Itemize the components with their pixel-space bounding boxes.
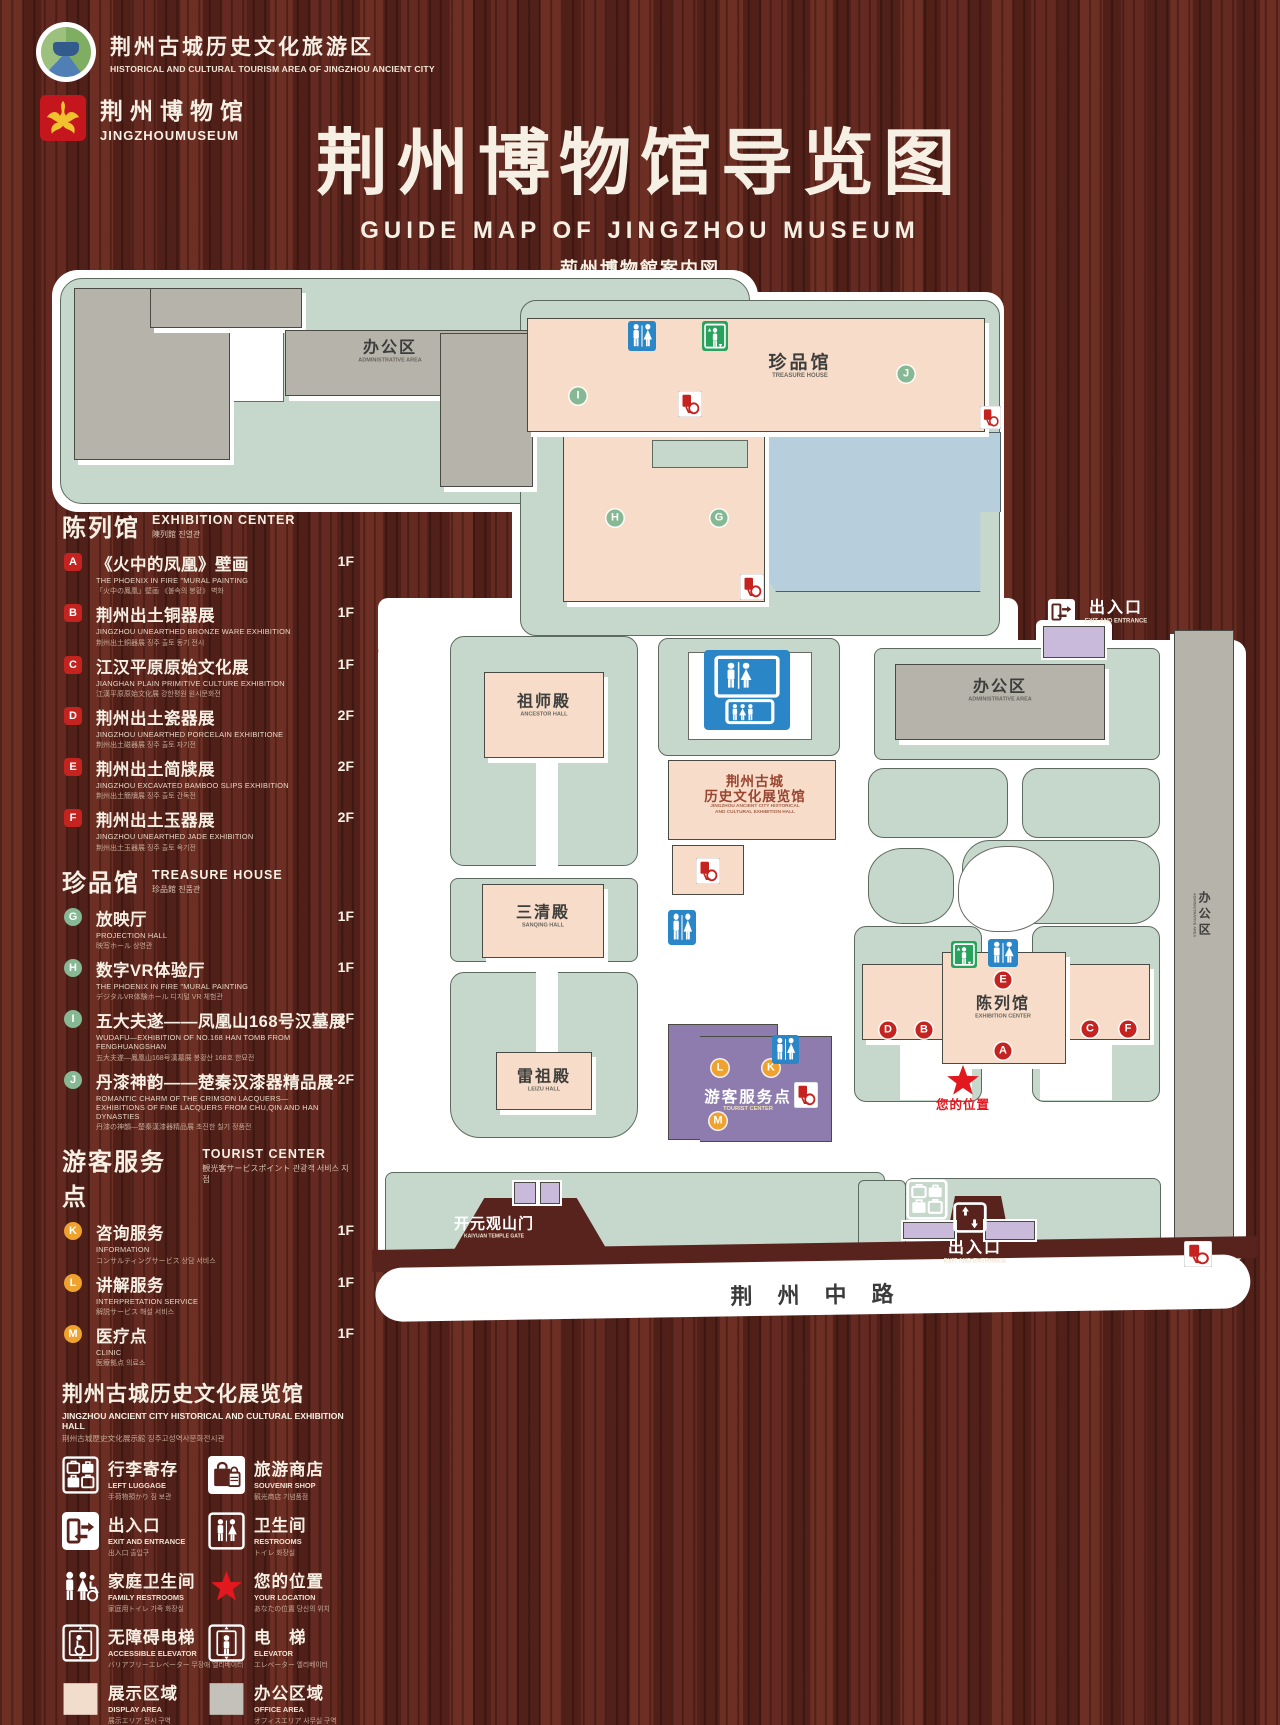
location-star-icon xyxy=(944,1062,982,1100)
map-marker-D: D xyxy=(880,1022,897,1039)
item-title-sub: 丹漆の神韻—楚秦漢漆器精品展 초진한 칠기 정품전 xyxy=(96,1122,320,1132)
shop-icon xyxy=(208,1456,245,1494)
legend-entry-shop: 旅游商店 SOUVENIR SHOP 観光商店 기념품점 xyxy=(208,1456,354,1501)
item-title-sub: 五大夫遂—鳳凰山168号漢墓展 봉황산 168호 한묘전 xyxy=(96,1053,320,1063)
legend-entry-swatch-pink: 展示区域 DISPLAY AREA 展示エリア 전시 구역 xyxy=(62,1680,208,1725)
accessible-red-icon xyxy=(696,858,720,884)
floor-label: 2F xyxy=(338,809,354,825)
legend-item-A: A 1F 《火中的凤凰》壁画 THE PHOENIX IN FIRE "MURA… xyxy=(62,551,354,596)
legend-item-C: C 1F 江汉平原原始文化展 JIANGHAN PLAIN PRIMITIVE … xyxy=(62,654,354,699)
legend-entry-zh: 展示区域 xyxy=(108,1680,178,1704)
garden-bed xyxy=(1022,768,1160,838)
item-title-en: CLINIC xyxy=(96,1348,320,1357)
accessible-red-icon xyxy=(740,574,764,600)
legend-item-K: K 1F 咨询服务 INFORMATION コンサルティングサービス 상담 서비… xyxy=(62,1220,354,1265)
legend-item-M: M 1F 医疗点 CLINIC 医療拠点 의료소 xyxy=(62,1323,354,1368)
restroom-icon xyxy=(208,1512,245,1550)
section-title-en: TREASURE HOUSE珍品館 진품관 xyxy=(152,868,283,895)
courtyard-path xyxy=(536,957,558,1052)
item-title-sub: 映写ホール 상영관 xyxy=(96,941,320,951)
legend-entry-family: 家庭卫生间 FAMILY RESTROOMS 家庭用トイレ 가족 화장실 xyxy=(62,1568,208,1613)
item-title-en: JINGZHOU EXCAVATED BAMBOO SLIPS EXHIBITI… xyxy=(96,781,320,790)
map-label-admin-right: 办公区ADMINISTRATIVE AREA xyxy=(966,679,1035,704)
floor-label: 2F xyxy=(338,707,354,723)
map-label-admin-strip: 办公区ADMINISTRATIVE AREA xyxy=(1192,891,1210,939)
item-title-sub: コンサルティングサービス 상담 서비스 xyxy=(96,1256,320,1266)
legend-item-D: D 2F 荆州出土瓷器展 JINGZHOU UNEARTHED PORCELAI… xyxy=(62,705,354,750)
legend-entry-zh: 家庭卫生间 xyxy=(108,1568,196,1592)
item-title-sub: 荆州出土簡牘展 징주 출토 간독전 xyxy=(96,791,320,801)
section-title-en: EXHIBITION CENTER陳列館 진열관 xyxy=(152,513,295,540)
swatch-pink-icon xyxy=(62,1680,99,1718)
legend-entry-sub: オフィスエリア 사무실 구역 xyxy=(254,1715,336,1725)
exit-icon xyxy=(1048,599,1075,625)
map-marker-I: I xyxy=(570,388,587,405)
legend-sidebar: 陈列馆EXHIBITION CENTER陳列館 진열관 A 1F 《火中的凤凰》… xyxy=(62,498,354,1725)
item-title-zh: 讲解服务 xyxy=(96,1272,354,1296)
map-label-treasure-house: 珍品馆TREASURE HOUSE xyxy=(769,352,832,379)
floor-label: 1F xyxy=(338,1222,354,1238)
legend-badge-L: L xyxy=(64,1274,82,1292)
item-title-en: INTERPRETATION SERVICE xyxy=(96,1297,320,1306)
museum-name: 荆州博物馆 xyxy=(100,92,250,126)
legend-entry-sub: エレベーター 엘리베이터 xyxy=(254,1659,328,1669)
item-title-zh: 《火中的凤凰》壁画 xyxy=(96,551,354,575)
legend-badge-H: H xyxy=(64,959,82,977)
building-treasure-upper xyxy=(527,318,985,432)
map-marker-J: J xyxy=(898,366,915,383)
item-title-sub: 荆州出土玉器展 징주 출토 옥기전 xyxy=(96,843,320,853)
legend-entry-en: YOUR LOCATION xyxy=(254,1593,330,1602)
legend-item-G: G 1F 放映厅 PROJECTION HALL 映写ホール 상영관 xyxy=(62,906,354,951)
tourism-area-name-en: HISTORICAL AND CULTURAL TOURISM AREA OF … xyxy=(110,64,435,74)
legend-badge-B: B xyxy=(64,604,82,622)
section-title-zh: 陈列馆 xyxy=(62,508,140,543)
restroom-family-icon xyxy=(704,650,790,730)
accessible-red-icon xyxy=(794,1082,818,1108)
legend-icon-grid: 行李寄存 LEFT LUGGAGE 手荷物預かり 짐 보관 旅游商店 SOUVE… xyxy=(62,1456,354,1725)
exit-icon xyxy=(62,1512,99,1550)
map-marker-L: L xyxy=(712,1060,729,1077)
floor-label: 1F xyxy=(338,1325,354,1341)
tourism-area-logo-icon xyxy=(36,22,96,82)
item-title-sub: 医療拠点 의료소 xyxy=(96,1358,320,1368)
legend-badge-J: J xyxy=(64,1071,82,1089)
family-icon xyxy=(62,1568,99,1606)
tourism-area-logo: 荆州古城历史文化旅游区 HISTORICAL AND CULTURAL TOUR… xyxy=(36,22,435,82)
floor-label: 1F xyxy=(338,656,354,672)
legend-entry-accessible: 无障碍电梯 ACCESSIBLE ELEVATOR バリアフリーエレベーター 무… xyxy=(62,1624,208,1669)
item-title-en: JIANGHAN PLAIN PRIMITIVE CULTURE EXHIBIT… xyxy=(96,679,320,688)
legend-entry-star: 您的位置 YOUR LOCATION あなたの位置 당신의 위치 xyxy=(208,1568,354,1613)
map-label-exit-top: 出入口EXIT AND ENTRANCE xyxy=(1082,599,1150,624)
floor-label: 1F xyxy=(338,553,354,569)
legend-badge-G: G xyxy=(64,908,82,926)
legend-section-header: 珍品馆TREASURE HOUSE珍品館 진품관 xyxy=(62,863,354,898)
map-label-your-location: 您的位置 xyxy=(936,1098,990,1112)
legend-entry-zh: 出入口 xyxy=(108,1512,185,1536)
restroom-icon xyxy=(772,1035,799,1064)
legend-entry-zh: 卫生间 xyxy=(254,1512,307,1536)
legend-badge-A: A xyxy=(64,553,82,571)
restroom-icon xyxy=(988,939,1018,967)
legend-badge-I: I xyxy=(64,1010,82,1028)
legend-item-F: F 2F 荆州出土玉器展 JINGZHOU UNEARTHED JADE EXH… xyxy=(62,807,354,852)
luggage-icon xyxy=(906,1179,948,1220)
item-title-zh: 荆州出土玉器展 xyxy=(96,807,354,831)
gate-pier xyxy=(540,1182,560,1204)
swatch-gray-icon xyxy=(208,1680,245,1718)
map-label-admin-tl: 办公区ADMINISTRATIVE AREA xyxy=(356,340,425,365)
museum-name-en: JINGZHOUMUSEUM xyxy=(100,128,250,143)
legend-entry-zh: 您的位置 xyxy=(254,1568,330,1592)
map-marker-C: C xyxy=(1082,1021,1099,1038)
elevator-icon xyxy=(951,941,977,968)
gate-pier xyxy=(514,1182,536,1204)
floor-label: 1-2F xyxy=(325,1071,354,1087)
item-title-sub: 荆州出土銅器展 징주 출토 동기 전시 xyxy=(96,638,320,648)
item-title-en: ROMANTIC CHARM OF THE CRIMSON LACQUERS— … xyxy=(96,1094,320,1122)
legend-entry-sub: 家庭用トイレ 가족 화장실 xyxy=(108,1603,196,1613)
legend-entry-en: FAMILY RESTROOMS xyxy=(108,1593,196,1602)
item-title-zh: 数字VR体验厅 xyxy=(96,957,354,981)
legend-entry-exit: 出入口 EXIT AND ENTRANCE 出入口 출입구 xyxy=(62,1512,208,1557)
legend-entry-en: OFFICE AREA xyxy=(254,1705,336,1714)
accessible-icon xyxy=(62,1624,99,1662)
map-label-exit-bottom: 出入口EXIT AND ENTRANCE xyxy=(941,1239,1009,1264)
legend-item-B: B 1F 荆州出土铜器展 JINGZHOU UNEARTHED BRONZE W… xyxy=(62,602,354,647)
building-exhibition-right-arm xyxy=(1064,964,1150,1040)
item-title-en: JINGZHOU UNEARTHED BRONZE WARE EXHIBITIO… xyxy=(96,627,320,636)
item-title-sub: 「火中の鳳凰」壁画 《불속의 봉황》 벽화 xyxy=(96,586,320,596)
legend-entry-restroom: 卫生间 RESTROOMS トイレ 화장실 xyxy=(208,1512,354,1557)
legend-entry-sub: 観光商店 기념품점 xyxy=(254,1491,324,1501)
item-title-zh: 咨询服务 xyxy=(96,1220,354,1244)
museum-logo-icon xyxy=(40,95,86,141)
legend-entry-sub: 出入口 출입구 xyxy=(108,1547,185,1557)
legend-badge-K: K xyxy=(64,1222,82,1240)
item-title-zh: 荆州出土简牍展 xyxy=(96,756,354,780)
map-label-leizu-hall: 雷祖殿LEIZU HALL xyxy=(517,1069,571,1094)
gate-pier xyxy=(985,1221,1035,1240)
legend-entry-en: SOUVENIR SHOP xyxy=(254,1481,324,1490)
item-title-en: THE PHOENIX IN FIRE "MURAL PAINTING xyxy=(96,576,320,585)
gate-pier xyxy=(903,1222,955,1239)
legend-item-I: I 2F 五大夫遂——凤凰山168号汉墓展 WUDAFU—EXHIBITION … xyxy=(62,1008,354,1063)
legend-entry-elevator: 电 梯 ELEVATOR エレベーター 엘리베이터 xyxy=(208,1624,354,1669)
legend-entry-sub: 手荷物預かり 짐 보관 xyxy=(108,1491,178,1501)
legend-section-header: 游客服务点TOURIST CENTER観光客サービスポイント 관광객 서비스 지… xyxy=(62,1142,354,1212)
guide-map-poster: { "header": { "logo1": {"zh": "荆州古城历史文化旅… xyxy=(0,0,1280,1451)
elevator-icon xyxy=(702,321,728,351)
legend-item-H: H 1F 数字VR体验厅 THE PHOENIX IN FIRE "MURAL … xyxy=(62,957,354,1002)
accessible-red-icon xyxy=(678,391,702,417)
treasure-green-strip xyxy=(652,440,748,468)
restroom-icon xyxy=(668,910,696,945)
accessible-red-icon xyxy=(980,406,1001,429)
map-label-kaiyuan-gate: 开元观山门KAIYUAN TEMPLE GATE xyxy=(454,1217,534,1240)
map-marker-E: E xyxy=(995,972,1012,989)
legend-entry-sub: 展示エリア 전시 구역 xyxy=(108,1715,178,1725)
section-title-zh: 珍品馆 xyxy=(62,863,140,898)
exit-updown-icon xyxy=(953,1202,987,1233)
legend-entry-swatch-gray: 办公区域 OFFICE AREA オフィスエリア 사무실 구역 xyxy=(208,1680,354,1725)
hall-note-sub: 荆州古城歴史文化展示館 징주고성역사문화전시관 xyxy=(62,1433,354,1444)
restroom-icon xyxy=(628,321,656,351)
tourism-area-name: 荆州古城历史文化旅游区 xyxy=(110,31,435,61)
legend-entry-zh: 行李寄存 xyxy=(108,1456,178,1480)
legend-section: 游客服务点TOURIST CENTER観光客サービスポイント 관광객 서비스 지… xyxy=(62,1142,354,1368)
legend-item-J: J 1-2F 丹漆神韵——楚秦汉漆器精品展 ROMANTIC CHARM OF … xyxy=(62,1069,354,1133)
map-label-exhibition-center: 陈列馆EXHIBITION CENTER xyxy=(973,996,1034,1021)
garden-bed xyxy=(868,848,954,924)
legend-entry-en: RESTROOMS xyxy=(254,1537,307,1546)
item-title-zh: 荆州出土瓷器展 xyxy=(96,705,354,729)
item-title-en: JINGZHOU UNEARTHED JADE EXHIBITION xyxy=(96,832,320,841)
item-title-zh: 医疗点 xyxy=(96,1323,354,1347)
item-title-sub: 解説サービス 해설 서비스 xyxy=(96,1307,320,1317)
legend-entry-en: DISPLAY AREA xyxy=(108,1705,178,1714)
page-title-en: GUIDE MAP OF JINGZHOU MUSEUM xyxy=(280,217,1000,245)
map-label-ancestor-hall: 祖师殿ANCESTOR HALL xyxy=(517,694,571,719)
item-title-zh: 荆州出土铜器展 xyxy=(96,602,354,626)
item-title-zh: 丹漆神韵——楚秦汉漆器精品展 xyxy=(96,1069,354,1093)
hall-note-zh: 荆州古城历史文化展览馆 xyxy=(62,1378,354,1408)
luggage-icon xyxy=(62,1456,99,1494)
legend-item-L: L 1F 讲解服务 INTERPRETATION SERVICE 解説サービス … xyxy=(62,1272,354,1317)
map-label-jz-exhibition-hall: 荆州古城历史文化展览馆JINGZHOU ANCIENT CITY HISTORI… xyxy=(704,774,806,816)
legend-entry-zh: 办公区域 xyxy=(254,1680,336,1704)
floor-label: 1F xyxy=(338,959,354,975)
accessible-red-icon xyxy=(1184,1241,1212,1267)
building-exhibition-left-arm xyxy=(862,964,946,1040)
garden-bed xyxy=(868,768,1008,838)
map-marker-B: B xyxy=(916,1022,933,1039)
item-title-en: THE PHOENIX IN FIRE "MURAL PAINTING xyxy=(96,982,320,991)
map-marker-M: M xyxy=(710,1113,727,1130)
floor-label: 1F xyxy=(338,908,354,924)
courtyard-path xyxy=(536,758,558,866)
item-title-zh: 江汉平原原始文化展 xyxy=(96,654,354,678)
item-title-zh: 五大夫遂——凤凰山168号汉墓展 xyxy=(96,1008,354,1032)
item-title-en: INFORMATION xyxy=(96,1245,320,1254)
legend-entry-en: EXIT AND ENTRANCE xyxy=(108,1537,185,1546)
legend-hall-note: 荆州古城历史文化展览馆 JINGZHOU ANCIENT CITY HISTOR… xyxy=(62,1378,354,1444)
legend-entry-en: ELEVATOR xyxy=(254,1649,328,1658)
legend-badge-M: M xyxy=(64,1325,82,1343)
star-icon xyxy=(208,1568,245,1606)
legend-entry-sub: トイレ 화장실 xyxy=(254,1547,307,1557)
section-title-en: TOURIST CENTER観光客サービスポイント 관광객 서비스 지점 xyxy=(202,1147,354,1185)
garden-pond xyxy=(958,846,1054,932)
building-admin-topleft xyxy=(150,288,302,328)
map-label-tourist-center: 游客服务点TOURIST CENTER xyxy=(704,1089,792,1113)
item-title-en: PROJECTION HALL xyxy=(96,931,320,940)
hall-note-en: JINGZHOU ANCIENT CITY HISTORICAL AND CUL… xyxy=(62,1411,354,1431)
map-label-sanqing-hall: 三清殿SANQING HALL xyxy=(516,905,570,930)
map-label-road: 荆州中路 xyxy=(705,1282,918,1310)
floor-label: 2F xyxy=(338,1010,354,1026)
building-admin-strip xyxy=(1174,630,1234,1250)
legend-section: 陈列馆EXHIBITION CENTER陳列館 진열관 A 1F 《火中的凤凰》… xyxy=(62,508,354,853)
legend-badge-D: D xyxy=(64,707,82,725)
map-marker-A: A xyxy=(995,1043,1012,1060)
item-title-sub: 荆州出土磁器展 징주 출토 자기전 xyxy=(96,740,320,750)
floor-label: 1F xyxy=(338,1274,354,1290)
floor-label: 2F xyxy=(338,758,354,774)
legend-section: 珍品馆TREASURE HOUSE珍品館 진품관 G 1F 放映厅 PROJEC… xyxy=(62,863,354,1133)
legend-entry-luggage: 行李寄存 LEFT LUGGAGE 手荷物預かり 짐 보관 xyxy=(62,1456,208,1501)
item-title-en: JINGZHOU UNEARTHED PORCELAIN EXHIBITIONE xyxy=(96,730,320,739)
elevator-icon xyxy=(208,1624,245,1662)
museum-logo: 荆州博物馆 JINGZHOUMUSEUM xyxy=(40,92,250,143)
legend-badge-C: C xyxy=(64,656,82,674)
map-marker-F: F xyxy=(1120,1021,1137,1038)
legend-entry-zh: 旅游商店 xyxy=(254,1456,324,1480)
floor-label: 1F xyxy=(338,604,354,620)
item-title-zh: 放映厅 xyxy=(96,906,354,930)
page-title: 荆州博物馆导览图 xyxy=(280,104,1000,209)
building-admin-topleft xyxy=(440,333,533,487)
legend-badge-F: F xyxy=(64,809,82,827)
building-gatehouse-top xyxy=(1043,626,1105,658)
legend-item-E: E 2F 荆州出土简牍展 JINGZHOU EXCAVATED BAMBOO S… xyxy=(62,756,354,801)
legend-entry-sub: あなたの位置 당신의 위치 xyxy=(254,1603,330,1613)
legend-badge-E: E xyxy=(64,758,82,776)
item-title-en: WUDAFU—EXHIBITION OF NO.168 HAN TOMB FRO… xyxy=(96,1033,320,1052)
item-title-sub: 江漢平原原始文化展 강한평원 원시문화전 xyxy=(96,689,320,699)
legend-entry-zh: 电 梯 xyxy=(254,1624,328,1648)
legend-entry-en: LEFT LUGGAGE xyxy=(108,1481,178,1490)
legend-section-header: 陈列馆EXHIBITION CENTER陳列館 진열관 xyxy=(62,508,354,543)
item-title-sub: デジタルVR体験ホール 디지털 VR 체험관 xyxy=(96,992,320,1002)
section-title-zh: 游客服务点 xyxy=(62,1142,190,1212)
map-marker-G: G xyxy=(711,510,728,527)
map-marker-H: H xyxy=(607,510,624,527)
